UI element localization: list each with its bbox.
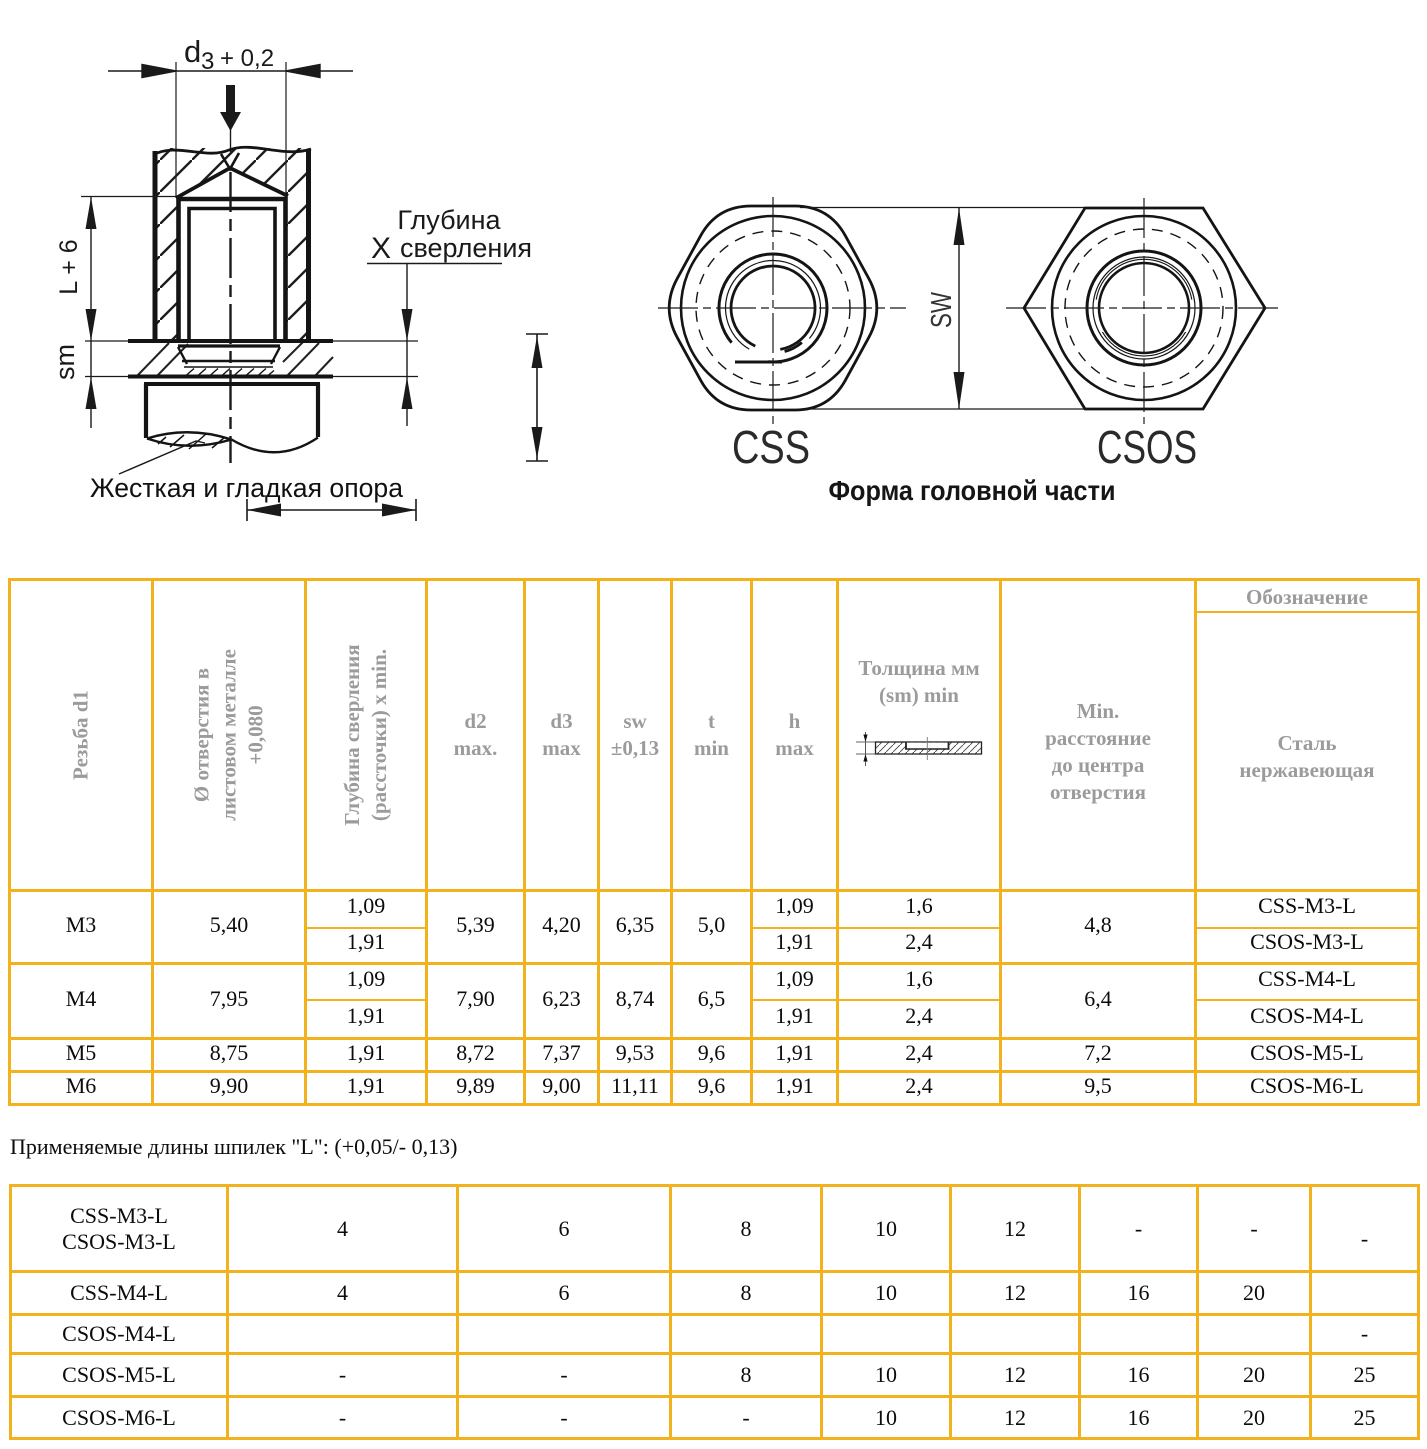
svg-text:SW: SW [926,292,958,328]
svg-text:X: X [371,232,391,265]
svg-text:Форма головной части: Форма головной части [829,475,1116,506]
svg-text:L + 6: L + 6 [55,239,83,294]
svg-text:d: d [184,34,201,69]
svg-text:CSS: CSS [732,421,810,473]
svg-text:сверления: сверления [400,233,532,263]
svg-text:+ 0,2: + 0,2 [220,45,274,72]
svg-text:CSOS: CSOS [1097,421,1197,473]
svg-text:Глубина: Глубина [397,205,501,235]
svg-text:Жесткая и гладкая опора: Жесткая и гладкая опора [90,473,404,503]
svg-text:sm: sm [50,344,80,380]
